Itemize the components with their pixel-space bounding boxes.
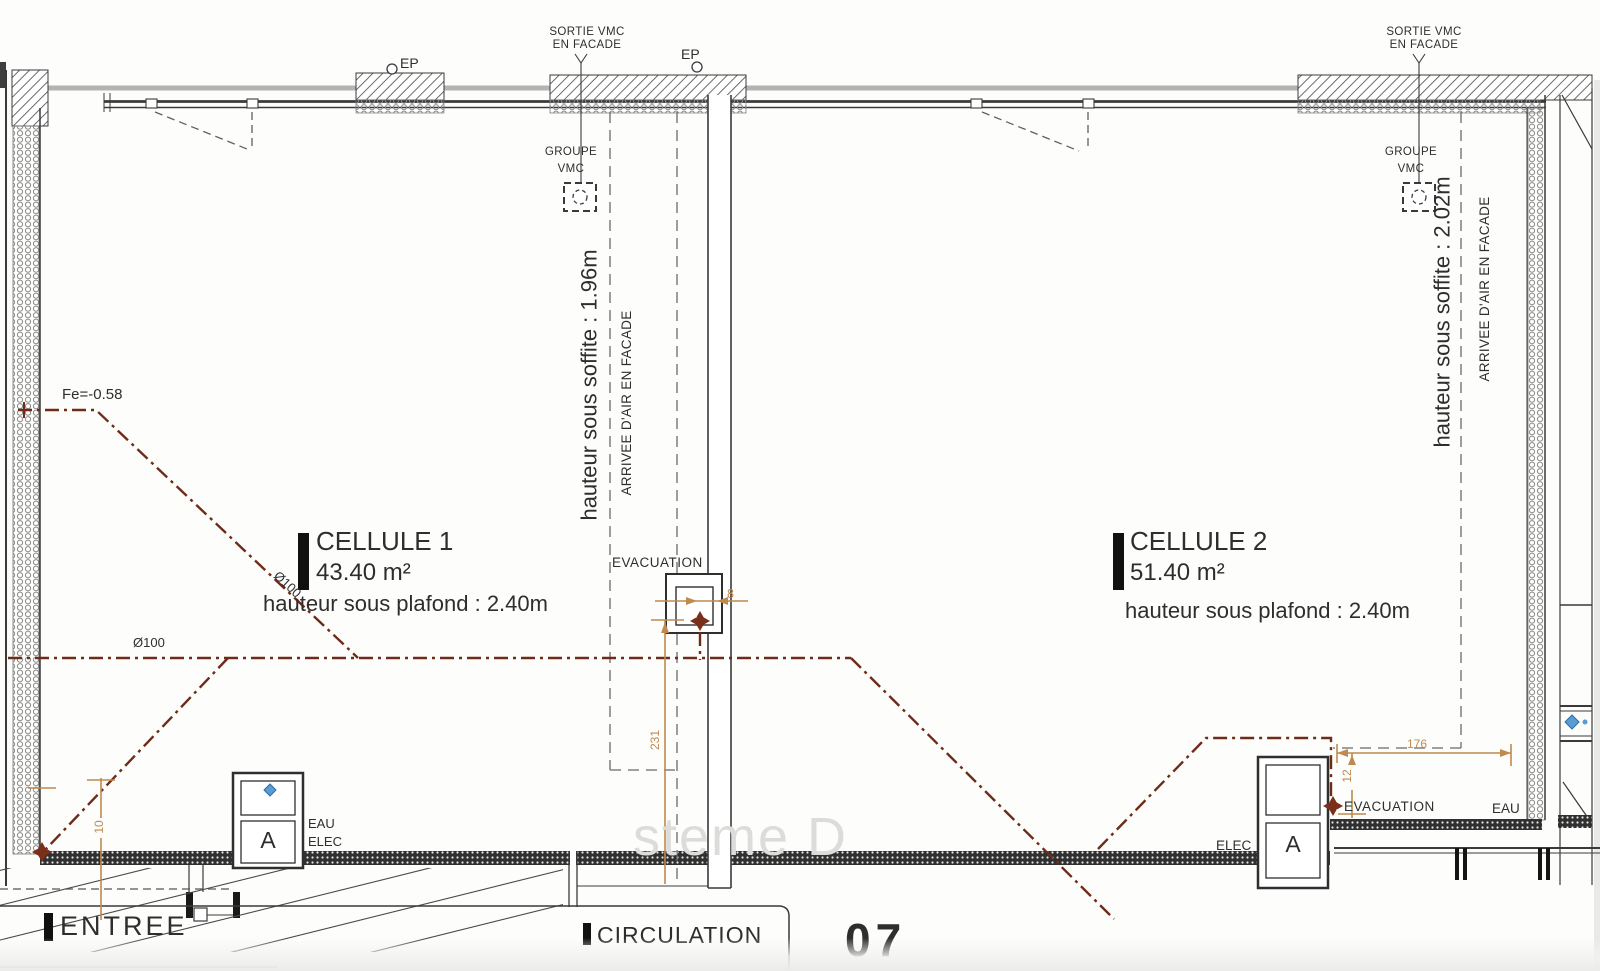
fe-level-label: Fe=-0.58 bbox=[62, 386, 122, 403]
cabinet-a-left-label: A bbox=[241, 827, 295, 853]
air-inlet-cell1: ARRIVEE D'AIR EN FACADE bbox=[619, 310, 635, 495]
evacuation-mid-label: EVACUATION bbox=[612, 555, 703, 571]
scan-fade-overlay bbox=[0, 938, 1600, 971]
top-exterior-wall bbox=[0, 62, 1592, 126]
rain-pipe-icon bbox=[387, 64, 397, 74]
sortie-vmc-right-label: SORTIE VMC EN FACADE bbox=[1354, 26, 1494, 52]
evacuation-right-label: EVACUATION bbox=[1344, 799, 1435, 815]
right-wall bbox=[1527, 80, 1600, 971]
dim-wall-thickness: 8 bbox=[727, 587, 734, 601]
door-leaf-line bbox=[1562, 95, 1592, 149]
water-fixture-right-strip bbox=[1565, 715, 1588, 729]
watermark-text: steme D bbox=[633, 806, 848, 868]
dim-niche-width: 176 bbox=[1407, 738, 1427, 752]
ep-label-1: EP bbox=[400, 55, 419, 71]
door-swings bbox=[155, 112, 1088, 151]
cell1-area: 43.40 m² bbox=[316, 559, 411, 587]
dim-left-offset: 10 bbox=[93, 820, 107, 833]
soffit-height-cell2: hauteur sous soffite : 2.02m bbox=[1429, 176, 1454, 447]
pipe-diameter-horizontal-label: Ø100 bbox=[133, 636, 165, 651]
soffit-height-cell1: hauteur sous soffite : 1.96m bbox=[576, 249, 601, 520]
ep-label-2: EP bbox=[681, 46, 700, 62]
left-exterior-wall bbox=[6, 70, 40, 886]
cell1-ceiling-height: hauteur sous plafond : 2.40m bbox=[263, 591, 548, 616]
elec-left-label: ELEC bbox=[308, 835, 342, 850]
floor-plan-canvas: steme D bbox=[0, 0, 1600, 971]
cell2-area: 51.40 m² bbox=[1130, 559, 1225, 587]
cell2-ceiling-height: hauteur sous plafond : 2.40m bbox=[1125, 598, 1410, 623]
cell1-name: CELLULE 1 bbox=[316, 527, 453, 557]
partition-wall bbox=[708, 95, 731, 888]
arrow-down-icon bbox=[1413, 54, 1425, 63]
water-fixture-icon bbox=[1565, 715, 1579, 729]
cabinet-right bbox=[1258, 757, 1328, 888]
arrow-down-icon bbox=[575, 54, 587, 63]
air-inlet-cell2: ARRIVEE D'AIR EN FACADE bbox=[1477, 196, 1493, 381]
door-leaf-line bbox=[1563, 782, 1588, 818]
groupe-vmc-right-label: GROUPE VMC bbox=[1361, 144, 1461, 179]
elec-right-label: ELEC bbox=[1216, 838, 1251, 854]
groupe-vmc-left-label: GROUPE VMC bbox=[521, 144, 621, 179]
sortie-vmc-left-label: SORTIE VMC EN FACADE bbox=[517, 26, 657, 52]
evacuation-box-mid bbox=[666, 574, 722, 633]
dim-niche-offset: 12 bbox=[1341, 769, 1355, 782]
rain-pipe-icon bbox=[692, 62, 702, 72]
cabinet-left bbox=[233, 773, 303, 868]
eau-right-label: EAU bbox=[1492, 801, 1520, 817]
cabinet-a-right-label: A bbox=[1266, 831, 1320, 857]
dashed-duct-lines bbox=[610, 112, 1461, 886]
eau-left-label: EAU bbox=[308, 817, 335, 832]
cell2-name: CELLULE 2 bbox=[1130, 527, 1267, 557]
vmc-unit-icon bbox=[564, 183, 596, 211]
dim-duct-run: 231 bbox=[649, 730, 663, 750]
